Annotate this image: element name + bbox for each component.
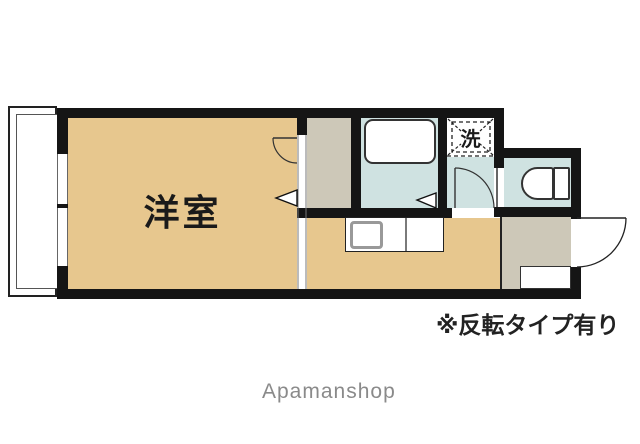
watermark: Apamanshop bbox=[262, 380, 396, 404]
western-room-label: 洋室 bbox=[68, 184, 297, 236]
closet-door-arc bbox=[273, 138, 297, 163]
floorplan: 洋室 洗 ※反転タイプ有り Apamanshop bbox=[0, 0, 640, 444]
opening-strip-lines bbox=[298, 135, 306, 289]
reverse-type-note: ※反転タイプ有り bbox=[436, 306, 636, 340]
bathroom-opening-marker bbox=[417, 193, 436, 208]
washer-label: 洗 bbox=[447, 123, 494, 152]
hallway-door-arc bbox=[455, 168, 494, 208]
front-door-arc bbox=[577, 218, 626, 267]
